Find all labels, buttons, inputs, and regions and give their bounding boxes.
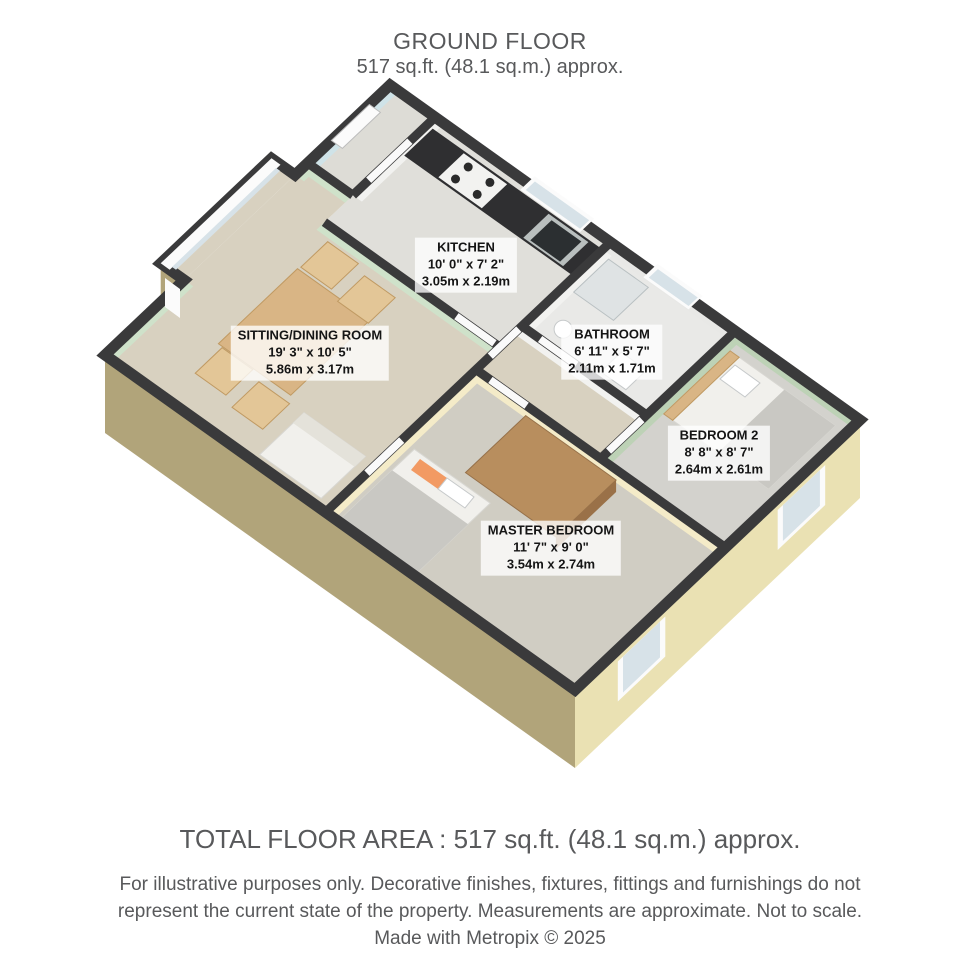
room-name: MASTER BEDROOM <box>488 523 614 540</box>
disclaimer-line2: represent the current state of the prope… <box>0 901 980 923</box>
room-size-imperial: 19' 3" x 10' 5" <box>238 345 382 362</box>
stove-burner <box>451 175 460 184</box>
room-size-imperial: 8' 8" x 8' 7" <box>675 445 763 462</box>
stove-burner <box>485 178 494 187</box>
metropix-credit: Made with Metropix © 2025 <box>0 928 980 950</box>
room-label: MASTER BEDROOM 11' 7" x 9' 0" 3.54m x 2.… <box>481 521 621 576</box>
room-size-metric: 3.54m x 2.74m <box>488 556 614 573</box>
disclaimer-line1: For illustrative purposes only. Decorati… <box>0 874 980 896</box>
room-name: BATHROOM <box>568 327 655 344</box>
stove-burner <box>473 190 482 199</box>
room-name: SITTING/DINING ROOM <box>238 328 382 345</box>
room-size-metric: 2.64m x 2.61m <box>675 461 763 478</box>
stove-burner <box>464 163 473 172</box>
room-size-metric: 5.86m x 3.17m <box>238 361 382 378</box>
total-floor-area: TOTAL FLOOR AREA : 517 sq.ft. (48.1 sq.m… <box>0 824 980 855</box>
room-size-metric: 3.05m x 2.19m <box>422 273 510 290</box>
floorplan-page: GROUND FLOOR 517 sq.ft. (48.1 sq.m.) app… <box>0 0 980 980</box>
room-size-metric: 2.11m x 1.71m <box>568 360 655 377</box>
room-label: BEDROOM 2 8' 8" x 8' 7" 2.64m x 2.61m <box>668 426 770 481</box>
room-label: KITCHEN 10' 0" x 7' 2" 3.05m x 2.19m <box>415 238 517 293</box>
room-size-imperial: 11' 7" x 9' 0" <box>488 540 614 557</box>
room-size-imperial: 10' 0" x 7' 2" <box>422 257 510 274</box>
room-name: KITCHEN <box>422 240 510 257</box>
room-label: BATHROOM 6' 11" x 5' 7" 2.11m x 1.71m <box>561 325 662 380</box>
floor-title: GROUND FLOOR <box>0 28 980 55</box>
room-name: BEDROOM 2 <box>675 428 763 445</box>
room-label: SITTING/DINING ROOM 19' 3" x 10' 5" 5.86… <box>231 326 389 381</box>
floor-area-subtitle: 517 sq.ft. (48.1 sq.m.) approx. <box>0 56 980 79</box>
room-size-imperial: 6' 11" x 5' 7" <box>568 344 655 361</box>
